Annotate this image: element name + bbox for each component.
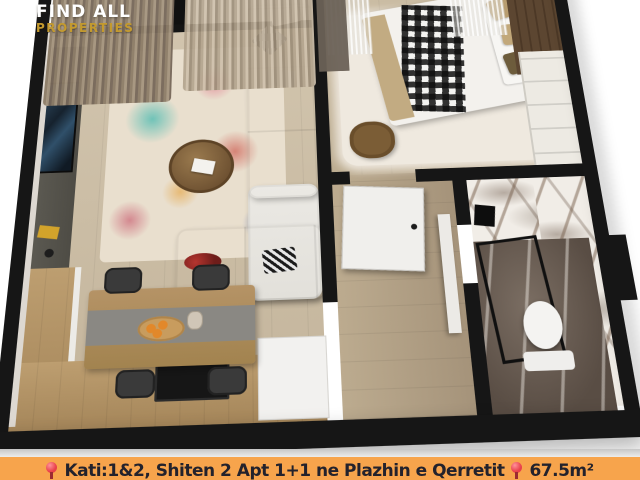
table-vase	[187, 311, 203, 330]
bathroom-fixture	[474, 204, 495, 226]
dining-chair	[104, 267, 143, 294]
caption-area-text: 67.5m²	[529, 461, 593, 480]
floorplan-wrap	[9, 0, 607, 452]
yellow-book	[37, 225, 60, 239]
location-pin-icon	[511, 462, 522, 480]
floorplan-3d	[0, 0, 640, 460]
caption-bar: Kati:1&2, Shiten 2 Apt 1+1 ne Plazhin e …	[0, 457, 640, 480]
dining-chair	[207, 366, 247, 396]
bedroom-hallway-wall	[332, 172, 351, 185]
table-card	[191, 158, 216, 174]
bedroom-armchair	[349, 121, 397, 159]
dining-chair	[192, 264, 230, 291]
location-pin-icon	[46, 462, 57, 480]
caption-location-text: Kati:1&2, Shiten 2 Apt 1+1 ne Plazhin e …	[64, 461, 504, 480]
bedroom-sheer-curtain-right	[444, 0, 508, 37]
orange-fruit	[152, 329, 162, 339]
living-room-curtain-right	[183, 0, 316, 91]
listing-image: FIND ALL PROPERTIES Kati:1&2, Shiten 2 A…	[0, 0, 640, 480]
base-platform-edge	[0, 449, 640, 457]
white-appliance	[257, 335, 329, 420]
logo-line2: PROPERTIES	[36, 22, 134, 35]
agency-logo: FIND ALL PROPERTIES	[36, 3, 134, 35]
hallway-door	[341, 186, 425, 272]
logo-line1: FIND ALL	[36, 3, 134, 22]
dining-chair	[115, 369, 156, 399]
door-handle	[411, 224, 417, 230]
toilet-tank	[523, 350, 576, 371]
dark-pillow	[262, 246, 298, 274]
bedroom-dark-curtain	[314, 0, 349, 72]
